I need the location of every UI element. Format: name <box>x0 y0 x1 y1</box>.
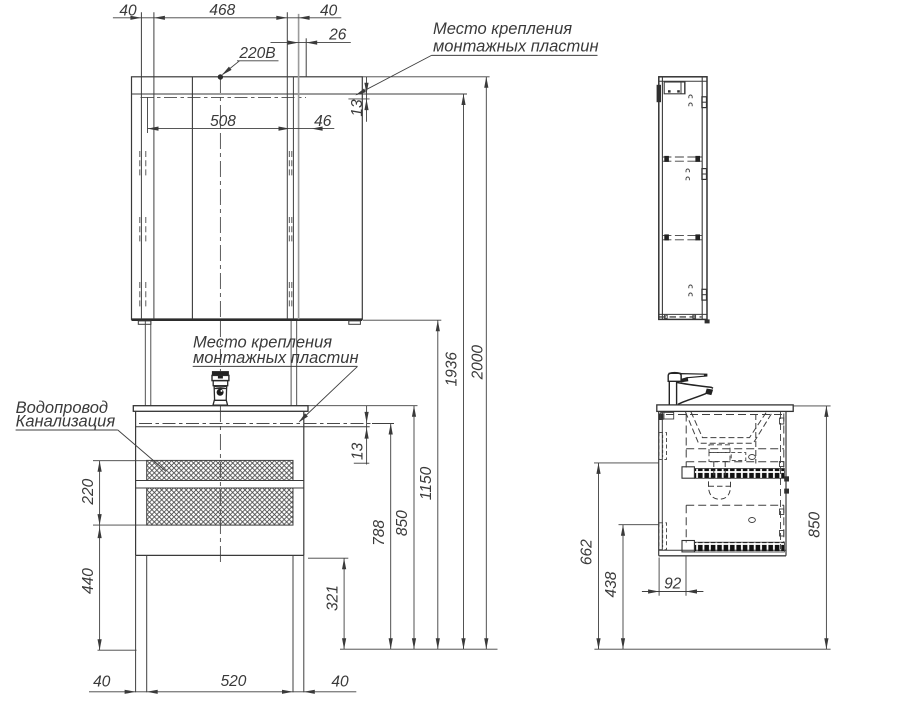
svg-text:монтажных пластин: монтажных пластин <box>193 349 359 367</box>
svg-text:508: 508 <box>210 113 236 130</box>
svg-text:26: 26 <box>328 27 347 44</box>
svg-text:40: 40 <box>331 674 349 691</box>
svg-text:321: 321 <box>324 585 341 611</box>
svg-text:468: 468 <box>209 2 235 19</box>
svg-text:438: 438 <box>603 571 620 597</box>
svg-text:40: 40 <box>93 674 111 691</box>
svg-text:1150: 1150 <box>418 466 435 500</box>
svg-text:788: 788 <box>371 520 388 546</box>
svg-text:Место крепления: Место крепления <box>433 20 572 38</box>
svg-text:13: 13 <box>349 442 366 460</box>
svg-text:850: 850 <box>394 510 411 536</box>
svg-text:46: 46 <box>314 113 332 130</box>
svg-text:1936: 1936 <box>444 352 461 387</box>
svg-text:2000: 2000 <box>470 345 487 381</box>
svg-text:220: 220 <box>80 478 97 505</box>
svg-text:Канализация: Канализация <box>16 413 116 431</box>
svg-text:92: 92 <box>664 576 682 593</box>
svg-text:520: 520 <box>221 673 247 690</box>
svg-text:662: 662 <box>579 539 596 565</box>
svg-text:440: 440 <box>80 568 97 594</box>
svg-text:40: 40 <box>320 3 338 20</box>
svg-text:40: 40 <box>119 3 137 20</box>
svg-text:850: 850 <box>807 511 824 537</box>
svg-text:220В: 220В <box>238 45 275 62</box>
svg-text:монтажных пластин: монтажных пластин <box>433 37 599 55</box>
svg-text:13: 13 <box>349 99 366 117</box>
